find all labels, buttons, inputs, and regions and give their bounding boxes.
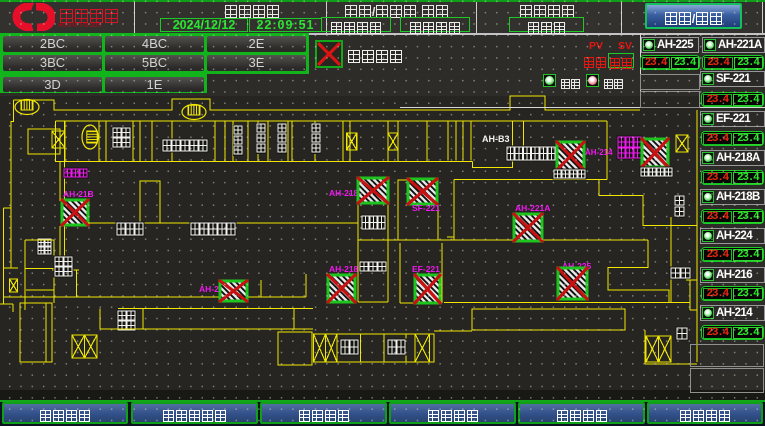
svg-text:AH-214: AH-214: [585, 148, 613, 157]
svg-text:AH-B3: AH-B3: [482, 134, 510, 144]
svg-text:EF-221: EF-221: [412, 264, 440, 274]
svg-text:AH-221A: AH-221A: [515, 203, 550, 213]
svg-text:AH-21B: AH-21B: [63, 189, 94, 199]
svg-text:SF-221: SF-221: [412, 203, 440, 213]
